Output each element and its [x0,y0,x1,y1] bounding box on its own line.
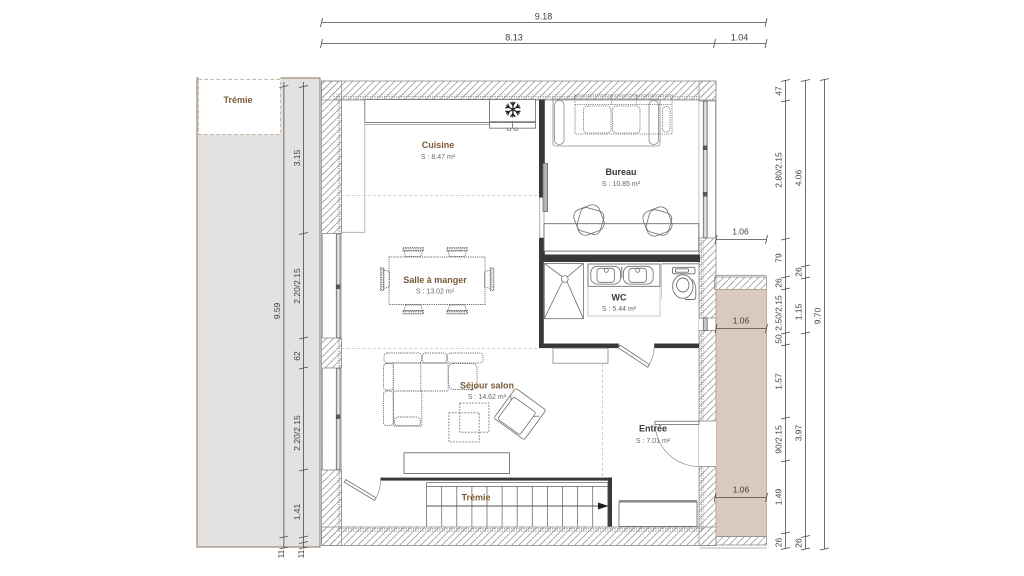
svg-text:1.41: 1.41 [292,503,302,520]
svg-text:S : 10.85 m²: S : 10.85 m² [602,181,641,188]
svg-text:26: 26 [773,278,783,288]
svg-text:1.57: 1.57 [773,373,783,390]
svg-text:Séjour salon: Séjour salon [460,381,514,391]
svg-text:Trémie: Trémie [223,95,252,105]
svg-text:26: 26 [793,538,803,548]
svg-text:1.06: 1.06 [732,227,749,237]
svg-text:9.59: 9.59 [272,302,282,319]
svg-text:S : 13.02 m²: S : 13.02 m² [416,289,455,296]
svg-text:2.50/2.15: 2.50/2.15 [773,295,783,331]
svg-text:Bureau: Bureau [605,167,636,177]
svg-text:WC: WC [612,293,627,303]
svg-text:Salle à manger: Salle à manger [403,275,467,285]
svg-text:1.06: 1.06 [733,316,750,326]
svg-text:S : 5.44 m²: S : 5.44 m² [602,306,637,313]
svg-text:S : 7.01 m²: S : 7.01 m² [636,438,671,445]
svg-text:4.06: 4.06 [793,169,803,186]
svg-text:11: 11 [276,549,286,558]
svg-text:2.20/2.15: 2.20/2.15 [292,268,302,304]
svg-text:26: 26 [793,267,803,277]
svg-text:79: 79 [773,253,783,263]
svg-text:1.06: 1.06 [733,485,750,495]
svg-text:2.80/2.15: 2.80/2.15 [773,152,783,188]
svg-text:Entrée: Entrée [639,424,667,434]
svg-text:9.18: 9.18 [535,12,553,22]
svg-text:1.15: 1.15 [793,303,803,320]
svg-text:11: 11 [296,549,306,558]
svg-text:2.20/2.15: 2.20/2.15 [292,415,302,451]
svg-text:62: 62 [292,351,302,361]
svg-text:1.49: 1.49 [773,488,783,505]
svg-text:50: 50 [773,334,783,344]
svg-text:Trémie: Trémie [461,493,490,503]
svg-text:3.97: 3.97 [793,424,803,441]
svg-text:47: 47 [773,86,783,96]
svg-text:26: 26 [773,538,783,548]
svg-text:8.13: 8.13 [505,33,523,43]
svg-text:Cuisine: Cuisine [422,140,455,150]
svg-text:S : 8.47 m²: S : 8.47 m² [421,154,456,161]
svg-text:S : 14.62 m²: S : 14.62 m² [468,394,507,401]
svg-text:3.15: 3.15 [292,149,302,166]
svg-text:1.04: 1.04 [731,33,749,43]
svg-text:9.70: 9.70 [812,307,822,324]
svg-text:90/2.15: 90/2.15 [773,425,783,454]
